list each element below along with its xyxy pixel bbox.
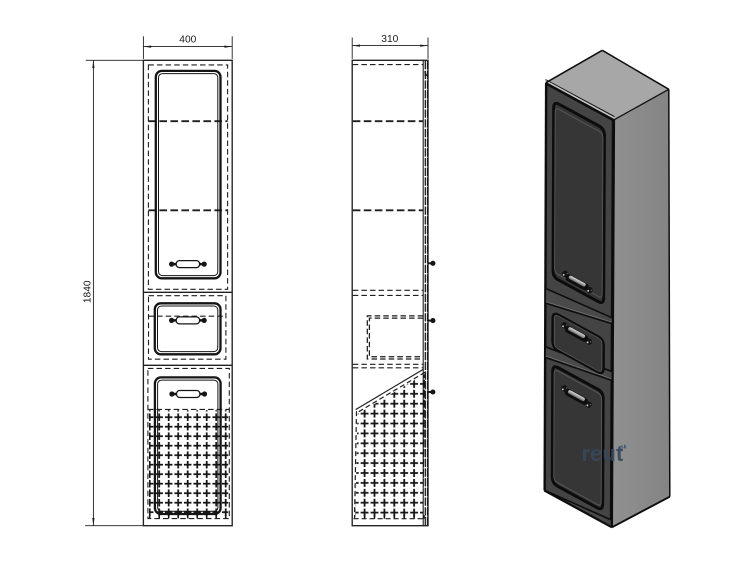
- svg-text:reut: reut: [582, 441, 624, 466]
- svg-text:sk: sk: [621, 444, 628, 450]
- svg-text:310: 310: [381, 34, 398, 45]
- svg-text:1840: 1840: [83, 280, 94, 303]
- svg-text:400: 400: [179, 35, 196, 46]
